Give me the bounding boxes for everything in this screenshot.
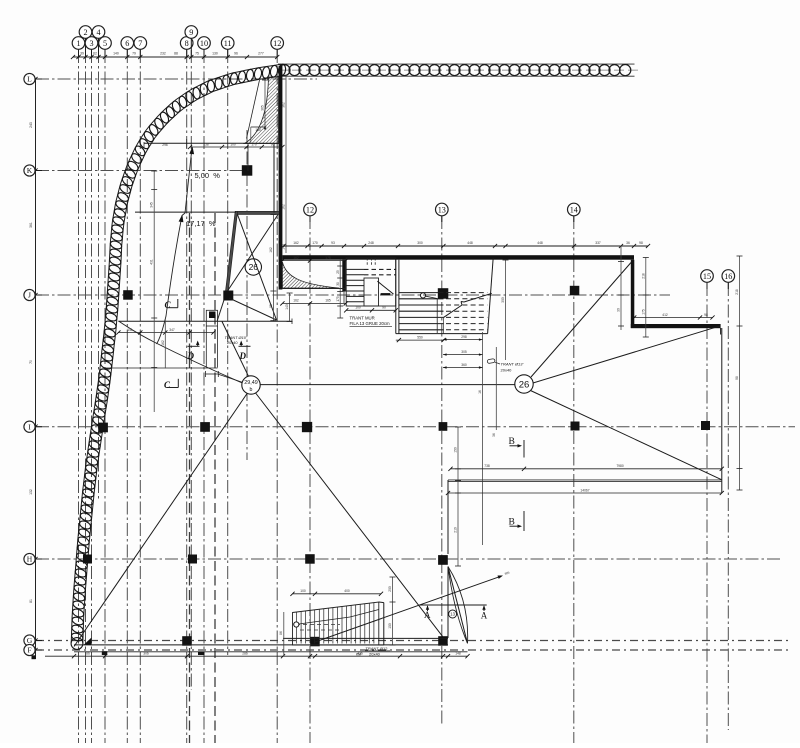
svg-text:TRANT MUR: TRANT MUR xyxy=(350,316,375,321)
svg-text:165: 165 xyxy=(325,299,331,303)
svg-text:95: 95 xyxy=(271,143,275,147)
svg-text:1: 1 xyxy=(76,39,80,48)
svg-text:88: 88 xyxy=(174,51,178,55)
svg-text:25: 25 xyxy=(336,270,340,274)
svg-text:175: 175 xyxy=(336,296,340,302)
svg-text:243: 243 xyxy=(29,122,33,128)
svg-text:26: 26 xyxy=(519,379,530,390)
svg-text:30: 30 xyxy=(617,308,621,312)
svg-text:175: 175 xyxy=(325,256,331,260)
svg-text:6: 6 xyxy=(125,39,129,48)
svg-text:162: 162 xyxy=(293,241,299,245)
svg-text:86: 86 xyxy=(279,631,283,635)
svg-text:16: 16 xyxy=(478,390,482,394)
svg-text:100: 100 xyxy=(255,128,261,132)
svg-text:412: 412 xyxy=(662,313,668,317)
svg-text:L: L xyxy=(27,75,32,84)
svg-text:70: 70 xyxy=(29,360,33,364)
svg-text:132: 132 xyxy=(29,489,33,495)
svg-text:D: D xyxy=(187,351,195,361)
svg-text:162: 162 xyxy=(293,299,299,303)
svg-text:10: 10 xyxy=(200,39,208,48)
svg-text:298: 298 xyxy=(461,335,467,339)
svg-text:5: 5 xyxy=(103,39,107,48)
svg-text:20x40: 20x40 xyxy=(369,651,381,656)
svg-text:29,49: 29,49 xyxy=(244,380,258,386)
svg-text:4: 4 xyxy=(96,28,100,37)
svg-text:400: 400 xyxy=(344,589,350,593)
svg-text:96: 96 xyxy=(234,51,238,55)
svg-text:F: F xyxy=(27,646,31,655)
svg-text:2: 2 xyxy=(83,28,87,37)
svg-text:7: 7 xyxy=(138,39,142,48)
svg-text:738: 738 xyxy=(484,464,490,468)
svg-text:14: 14 xyxy=(570,206,578,215)
svg-text:K: K xyxy=(27,166,33,175)
svg-text:210: 210 xyxy=(454,527,458,533)
svg-text:95: 95 xyxy=(269,304,273,308)
svg-text:296: 296 xyxy=(162,143,168,147)
svg-text:13: 13 xyxy=(438,206,446,215)
svg-text:100: 100 xyxy=(355,306,361,310)
svg-text:347: 347 xyxy=(169,328,175,332)
svg-text:140: 140 xyxy=(113,51,119,55)
svg-text:A: A xyxy=(424,610,431,620)
svg-text:305: 305 xyxy=(461,350,467,354)
svg-text:150: 150 xyxy=(388,623,392,629)
svg-text:232: 232 xyxy=(160,51,166,55)
svg-text:36: 36 xyxy=(626,241,630,245)
svg-text:39: 39 xyxy=(80,51,84,55)
svg-text:162: 162 xyxy=(281,204,285,210)
svg-text:16: 16 xyxy=(724,272,732,281)
svg-text:345: 345 xyxy=(150,202,154,208)
svg-text:79: 79 xyxy=(132,51,136,55)
svg-text:93: 93 xyxy=(331,241,335,245)
svg-text:141: 141 xyxy=(127,328,133,332)
svg-text:FILA 13 GRUE 20cm: FILA 13 GRUE 20cm xyxy=(350,321,391,326)
svg-text:162: 162 xyxy=(161,340,165,346)
svg-text:162: 162 xyxy=(269,247,273,253)
svg-text:D: D xyxy=(239,351,247,361)
svg-text:b: b xyxy=(250,387,253,393)
svg-text:100: 100 xyxy=(300,589,306,593)
svg-text:170: 170 xyxy=(251,143,257,147)
svg-text:337: 337 xyxy=(595,241,601,245)
svg-text:175: 175 xyxy=(641,309,645,315)
svg-text:86: 86 xyxy=(86,652,90,656)
svg-text:200: 200 xyxy=(388,586,392,592)
svg-text:17,17 %: 17,17 % xyxy=(186,219,216,228)
svg-text:431: 431 xyxy=(150,259,154,265)
svg-text:98: 98 xyxy=(735,376,739,380)
svg-text:81: 81 xyxy=(29,599,33,603)
svg-text:306: 306 xyxy=(143,652,149,656)
svg-text:J: J xyxy=(28,291,31,300)
svg-text:130: 130 xyxy=(212,51,218,55)
svg-text:361: 361 xyxy=(29,222,33,228)
svg-text:550: 550 xyxy=(417,335,423,339)
svg-text:218: 218 xyxy=(735,289,739,295)
svg-text:360: 360 xyxy=(461,363,467,367)
svg-text:11: 11 xyxy=(224,39,232,48)
svg-text:238: 238 xyxy=(203,143,209,147)
svg-text:170: 170 xyxy=(312,241,318,245)
svg-text:98: 98 xyxy=(639,241,643,245)
svg-text:8: 8 xyxy=(185,39,189,48)
svg-text:248: 248 xyxy=(368,241,374,245)
svg-text:C: C xyxy=(165,300,172,310)
svg-text:448: 448 xyxy=(537,241,543,245)
svg-text:KM: KM xyxy=(356,652,361,656)
svg-text:36: 36 xyxy=(492,433,496,437)
svg-text:365: 365 xyxy=(260,105,264,111)
svg-text:218: 218 xyxy=(641,273,645,279)
svg-text:300: 300 xyxy=(417,241,423,245)
svg-text:90: 90 xyxy=(382,306,386,310)
svg-text:30: 30 xyxy=(336,282,340,286)
svg-text:15: 15 xyxy=(703,272,711,281)
svg-text:13: 13 xyxy=(450,612,455,617)
svg-text:G: G xyxy=(27,636,33,645)
svg-text:448: 448 xyxy=(467,241,473,245)
svg-text:62: 62 xyxy=(93,51,97,55)
svg-text:9: 9 xyxy=(189,28,193,37)
svg-text:148: 148 xyxy=(455,652,461,656)
svg-text:277: 277 xyxy=(258,51,264,55)
svg-text:12: 12 xyxy=(273,39,281,48)
svg-text:20x40: 20x40 xyxy=(501,368,513,373)
svg-text:14067: 14067 xyxy=(580,488,589,492)
svg-text:C: C xyxy=(164,380,171,390)
svg-text:A: A xyxy=(481,611,488,621)
svg-text:7980: 7980 xyxy=(616,464,624,468)
svg-text:TRANT Ø12: TRANT Ø12 xyxy=(366,646,389,651)
svg-text:75: 75 xyxy=(195,51,199,55)
svg-text:140: 140 xyxy=(285,304,289,310)
svg-text:98: 98 xyxy=(704,313,708,317)
svg-text:20x40: 20x40 xyxy=(227,340,238,345)
svg-text:150: 150 xyxy=(454,447,458,453)
svg-text:362: 362 xyxy=(281,102,285,108)
svg-text:H: H xyxy=(27,555,33,564)
svg-text:5,00 %: 5,00 % xyxy=(195,171,221,180)
svg-text:100: 100 xyxy=(230,143,236,147)
svg-text:TRANT Ø13': TRANT Ø13' xyxy=(501,362,524,367)
svg-text:3: 3 xyxy=(89,39,93,48)
svg-text:12: 12 xyxy=(306,206,314,215)
svg-text:286: 286 xyxy=(242,652,248,656)
svg-text:300: 300 xyxy=(501,297,505,303)
svg-text:162: 162 xyxy=(293,256,299,260)
